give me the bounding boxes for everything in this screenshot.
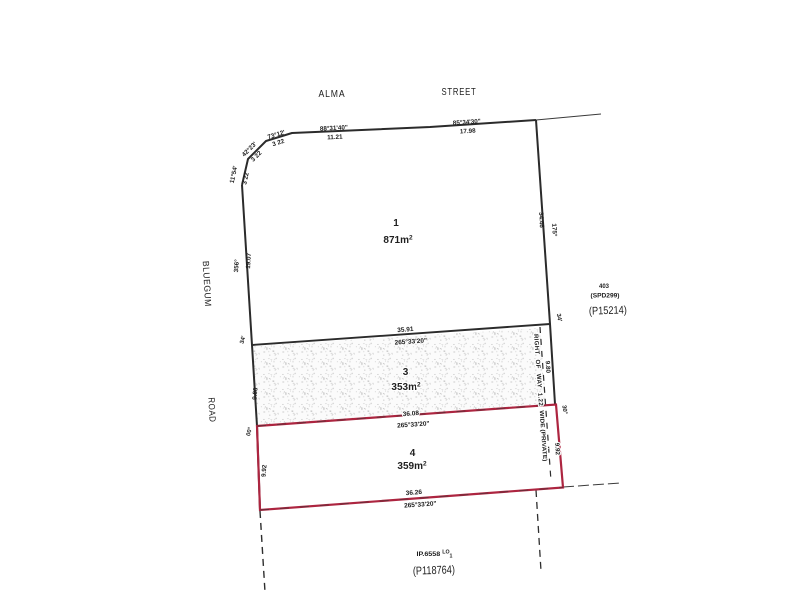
svg-text:34.46: 34.46 (537, 212, 545, 229)
svg-text:359m2: 359m2 (397, 461, 427, 473)
svg-text:(P118764): (P118764) (413, 564, 456, 577)
svg-text:9.92: 9.92 (260, 464, 268, 477)
svg-text:36.08: 36.08 (402, 410, 419, 418)
svg-text:403: 403 (599, 284, 610, 290)
svg-text:(P15214): (P15214) (589, 304, 627, 317)
svg-text:36.26: 36.26 (405, 489, 422, 497)
svg-text:9.92: 9.92 (553, 443, 561, 456)
svg-text:175°: 175° (550, 223, 559, 237)
svg-text:19.07: 19.07 (245, 252, 253, 269)
svg-text:17.98: 17.98 (460, 127, 477, 135)
svg-text:356°: 356° (232, 259, 241, 273)
svg-text:1: 1 (393, 218, 399, 229)
svg-text:4: 4 (410, 448, 416, 459)
svg-text:9.80: 9.80 (251, 387, 259, 400)
svg-text:88°31'40": 88°31'40" (320, 123, 348, 132)
svg-text:353m2: 353m2 (391, 382, 421, 394)
svg-text:3: 3 (403, 367, 409, 378)
svg-text:871m2: 871m2 (383, 235, 413, 247)
svg-text:ROAD: ROAD (206, 397, 217, 422)
svg-text:STREET: STREET (442, 87, 477, 98)
svg-text:11.21: 11.21 (327, 134, 343, 142)
svg-text:9.80: 9.80 (544, 360, 552, 373)
svg-text:ALMA: ALMA (319, 89, 346, 100)
svg-text:(SPD299): (SPD299) (591, 294, 620, 300)
svg-text:35.91: 35.91 (397, 326, 414, 334)
